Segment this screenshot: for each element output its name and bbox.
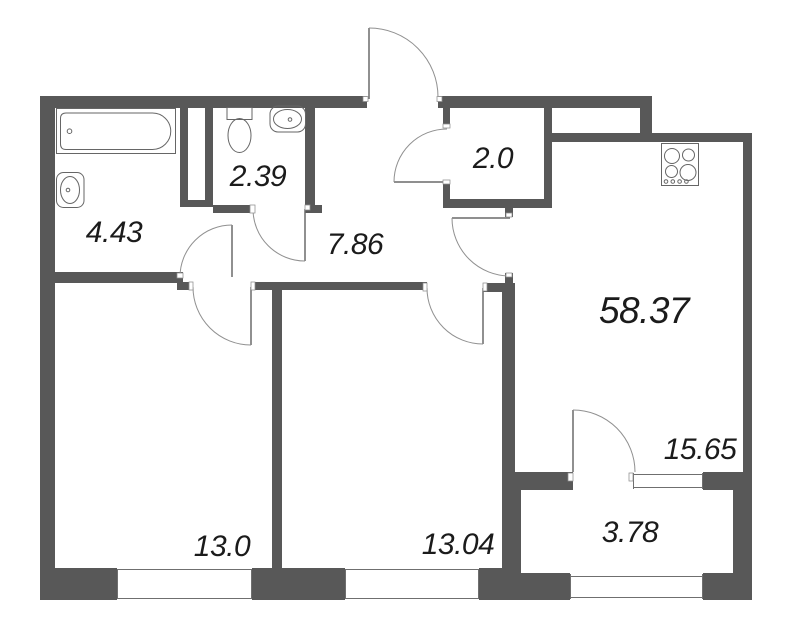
wall-segment [40,96,55,600]
room-label-toilet: 2.39 [230,160,286,194]
room-label-bedroom-middle: 13.04 [422,528,495,562]
wall-segment [733,472,752,600]
wall-segment [544,108,552,208]
wall-segment [55,272,183,283]
sink-icon [57,173,85,208]
wall-segment [502,283,515,568]
room-label-bathroom: 4.43 [86,216,142,250]
room-label-closet: 2.0 [473,142,513,176]
window-icon [570,573,703,600]
bathtub-icon [57,109,176,154]
floor-plan: 4.43 2.39 7.86 2.0 58.37 15.65 3.78 13.0… [0,0,800,639]
room-label-living-kitchen: 58.37 [599,290,689,332]
wall-segment [743,142,752,472]
wall-segment [443,199,552,208]
wall-segment [552,133,752,142]
bathroom-door-icon [180,225,232,277]
wall-segment [703,472,743,490]
entrance-door-icon [369,28,438,99]
wall-segment [180,108,188,203]
wall-segment [180,200,213,207]
wall-segment [438,96,652,108]
wall-segment [40,96,367,108]
wall-segment [40,568,117,600]
wall-segment [507,472,573,490]
toilet-icon [227,108,252,153]
room-label-hallway: 7.86 [327,228,383,262]
window-icon [633,472,703,490]
wall-segment [703,573,733,600]
closet-door-icon [394,129,447,182]
toilet-door-icon [253,209,305,261]
balcony-door-icon [573,410,635,472]
wall-segment [205,108,213,205]
room-label-bedroom-left: 13.0 [194,530,250,564]
room-label-balcony: 3.78 [602,516,658,550]
living-room-door-icon [452,218,510,276]
window-icon [117,568,252,600]
doors [180,28,635,472]
wall-segment [272,283,282,568]
bedroom-middle-door-icon [427,288,483,344]
bedroom-left-door-icon [193,287,251,345]
stove-icon [662,144,699,186]
wall-segment [213,205,255,213]
wall-segment [252,568,345,600]
wall-segment [521,573,570,600]
room-label-kitchen-zone: 15.65 [664,433,737,467]
sink-icon [270,106,306,132]
wall-segment [305,108,315,205]
window-icon [345,568,479,600]
